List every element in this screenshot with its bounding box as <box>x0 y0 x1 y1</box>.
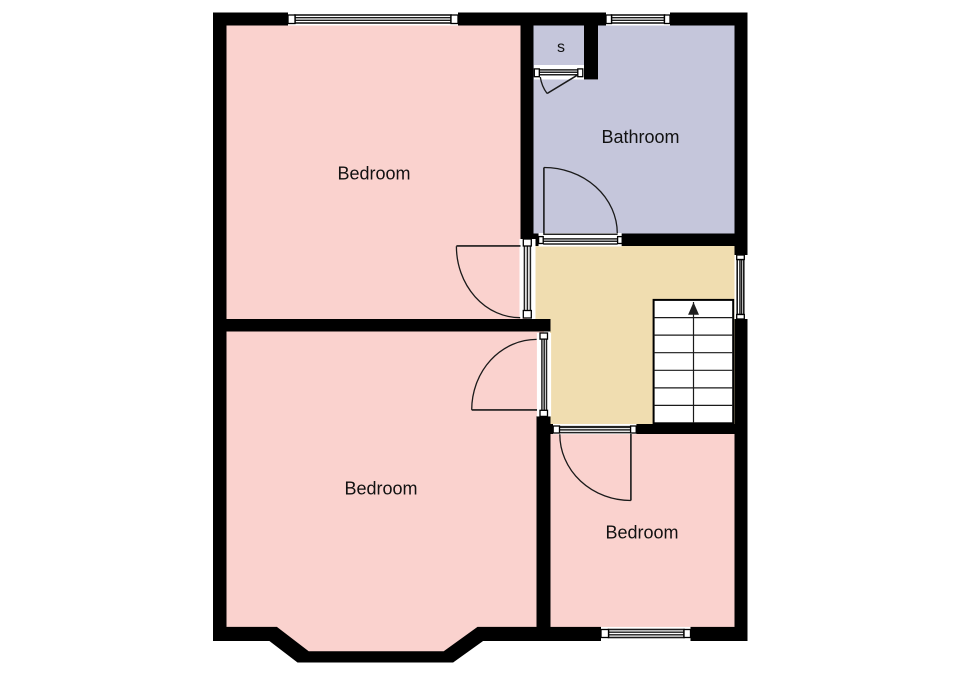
svg-text:Bedroom: Bedroom <box>337 163 410 183</box>
svg-text:Bedroom: Bedroom <box>605 523 678 543</box>
svg-text:Bedroom: Bedroom <box>344 478 417 498</box>
svg-text:s: s <box>557 39 565 56</box>
svg-text:Bathroom: Bathroom <box>601 127 679 147</box>
